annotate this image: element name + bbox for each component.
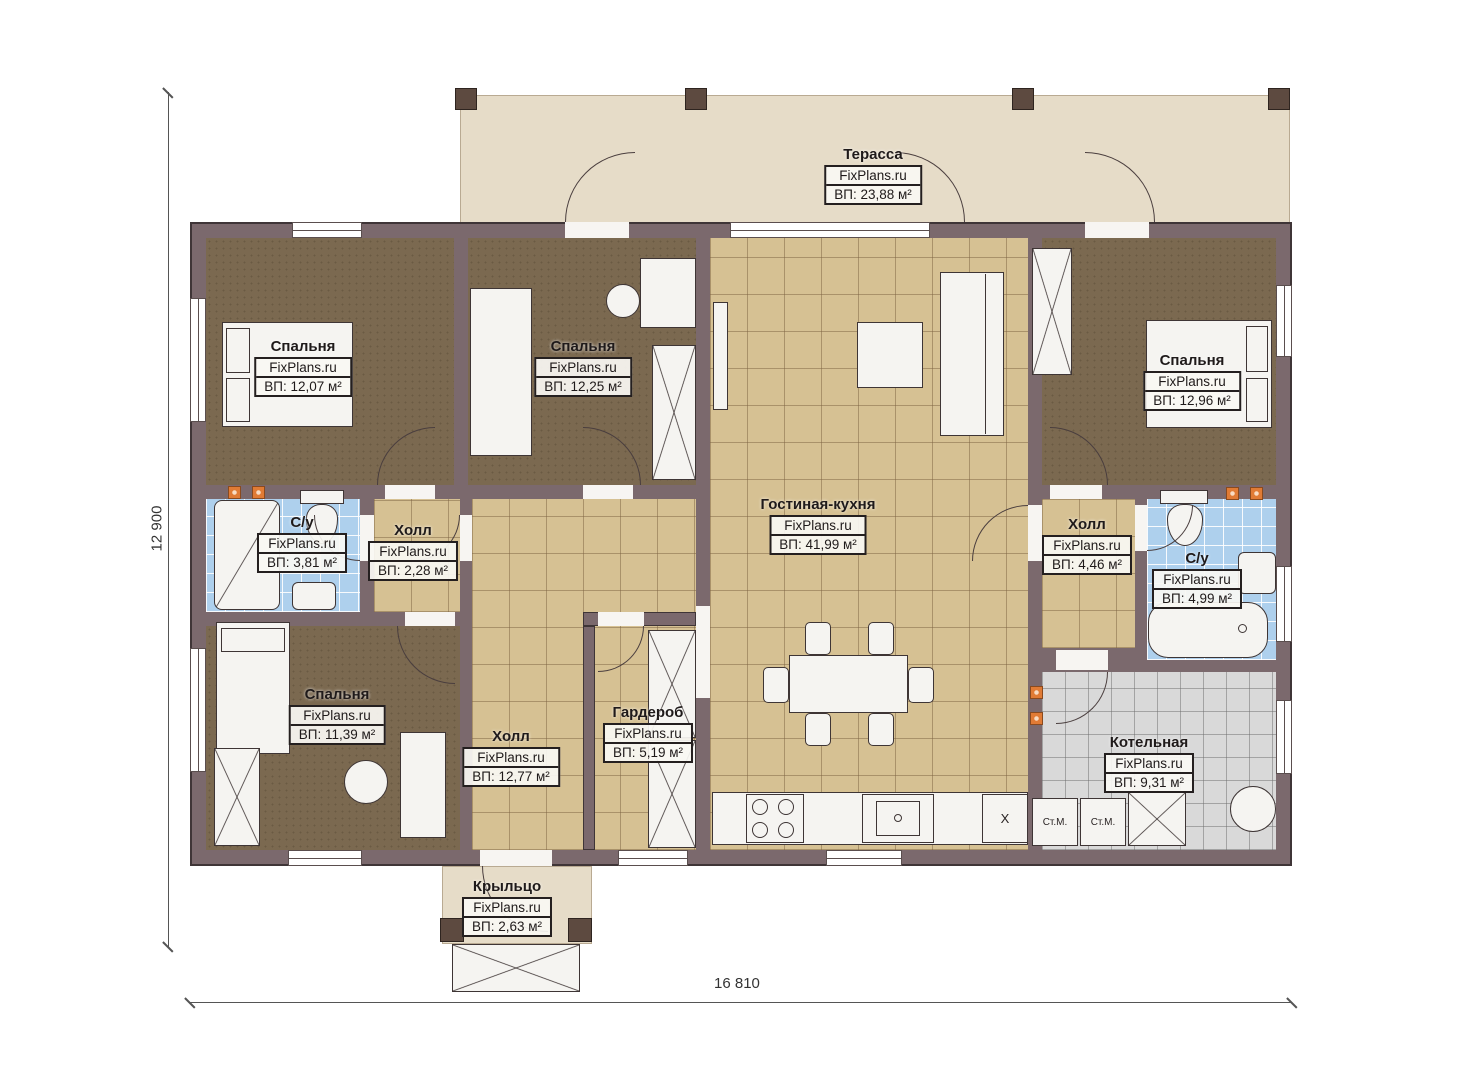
brand-link: FixPlans.ru [771, 517, 865, 536]
room-name: Терасса [824, 146, 922, 163]
porch-pillar [440, 918, 464, 942]
room-info-box: FixPlans.ru ВП: 2,63 м² [462, 897, 552, 937]
washbasin [292, 582, 336, 610]
porch-steps [452, 944, 580, 992]
door-opening-terrace-left [565, 222, 629, 238]
brand-link: FixPlans.ru [1145, 373, 1239, 392]
room-label-bedroom-bottom-left: Спальня FixPlans.ru ВП: 11,39 м² [289, 686, 386, 745]
room-label-bathroom-right: С/у FixPlans.ru ВП: 4,99 м² [1152, 550, 1242, 609]
radiator [1226, 487, 1239, 500]
room-name: С/у [257, 514, 347, 531]
brand-link: FixPlans.ru [256, 359, 350, 378]
brand-link: FixPlans.ru [464, 749, 558, 768]
room-label-hall-small-left: Холл FixPlans.ru ВП: 2,28 м² [368, 522, 458, 581]
radiator [1030, 712, 1043, 725]
room-area: ВП: 2,63 м² [464, 918, 550, 935]
washing-machine: Ст.М. [1032, 798, 1078, 846]
wardrobe-cabinet [214, 748, 260, 846]
boiler-tank [1230, 786, 1276, 832]
bed-pillow [226, 328, 250, 373]
room-info-box: FixPlans.ru ВП: 12,07 м² [254, 357, 352, 397]
radiator [252, 486, 265, 499]
door-opening-living-hallr [1028, 505, 1042, 561]
washbasin [1238, 552, 1276, 594]
window [288, 850, 362, 866]
room-name: Холл [368, 522, 458, 539]
room-info-box: FixPlans.ru ВП: 4,46 м² [1042, 535, 1132, 575]
brand-link: FixPlans.ru [464, 899, 550, 918]
room-name: Гардероб [603, 704, 693, 721]
room-area: ВП: 12,07 м² [256, 378, 350, 395]
dimension-line-horizontal [190, 1002, 1292, 1003]
stove-burner [752, 822, 768, 838]
room-info-box: FixPlans.ru ВП: 4,99 м² [1152, 569, 1242, 609]
room-area: ВП: 5,19 м² [605, 744, 691, 761]
dining-chair [868, 622, 894, 655]
desk [400, 732, 446, 838]
room-label-hall-main: Холл FixPlans.ru ВП: 12,77 м² [462, 728, 560, 787]
bed-pillow [221, 628, 285, 652]
door-opening-boiler [1056, 650, 1108, 670]
room-info-box: FixPlans.ru ВП: 2,28 м² [368, 541, 458, 581]
porch-pillar [568, 918, 592, 942]
fridge: X [982, 794, 1028, 843]
dining-chair [805, 713, 831, 746]
brand-link: FixPlans.ru [291, 707, 384, 726]
room-info-box: FixPlans.ru ВП: 41,99 м² [769, 515, 867, 555]
dining-table [789, 655, 908, 713]
dining-chair [908, 667, 934, 703]
window [190, 648, 206, 772]
window-terrace-glazing [730, 222, 930, 238]
room-name: Холл [1042, 516, 1132, 533]
sofa [470, 288, 532, 456]
room-area: ВП: 9,31 м² [1106, 774, 1192, 791]
room-area: ВП: 41,99 м² [771, 536, 865, 553]
door-opening-hall-left [460, 515, 472, 561]
dining-chair [763, 667, 789, 703]
bed-pillow [1246, 326, 1268, 372]
wardrobe-cabinet [1032, 248, 1072, 375]
room-name: Холл [462, 728, 560, 745]
office-chair [344, 760, 388, 804]
dining-chair [805, 622, 831, 655]
room-info-box: FixPlans.ru ВП: 12,77 м² [462, 747, 560, 787]
window [618, 850, 688, 866]
room-name: С/у [1152, 550, 1242, 567]
sofa-cushion-line [985, 274, 986, 434]
room-label-bedroom-top-right: Спальня FixPlans.ru ВП: 12,96 м² [1143, 352, 1241, 411]
tv-panel [713, 302, 728, 410]
room-info-box: FixPlans.ru ВП: 12,25 м² [534, 357, 632, 397]
terrace-pillar [455, 88, 477, 110]
room-name: Спальня [534, 338, 632, 355]
room-name: Гостиная-кухня [761, 496, 876, 513]
bed-pillow [226, 378, 250, 422]
toilet-tank [1160, 490, 1208, 504]
wardrobe-cabinet [652, 345, 696, 480]
brand-link: FixPlans.ru [370, 543, 456, 562]
radiator [1250, 487, 1263, 500]
dimension-line-vertical [168, 92, 169, 948]
stove-burner [778, 799, 794, 815]
room-name: Спальня [1143, 352, 1241, 369]
washing-machine: Ст.М. [1080, 798, 1126, 846]
desk [640, 258, 696, 328]
room-label-bedroom-top-left: Спальня FixPlans.ru ВП: 12,07 м² [254, 338, 352, 397]
door-opening-bedroom-bl [405, 612, 455, 626]
dimension-label-horizontal: 16 810 [710, 975, 764, 992]
room-label-wardrobe: Гардероб FixPlans.ru ВП: 5,19 м² [603, 704, 693, 763]
room-area: ВП: 4,99 м² [1154, 590, 1240, 607]
door-opening-living-hall [696, 606, 710, 698]
room-area: ВП: 12,96 м² [1145, 392, 1239, 409]
room-info-box: FixPlans.ru ВП: 11,39 м² [289, 705, 386, 745]
coffee-table [857, 322, 923, 388]
room-area: ВП: 12,77 м² [464, 768, 558, 785]
terrace-pillar [685, 88, 707, 110]
sink-drain [894, 814, 902, 822]
room-label-boiler-room: Котельная FixPlans.ru ВП: 9,31 м² [1104, 734, 1194, 793]
room-name: Спальня [254, 338, 352, 355]
room-area: ВП: 3,81 м² [259, 554, 345, 571]
brand-link: FixPlans.ru [259, 535, 345, 554]
stove-burner [778, 822, 794, 838]
floor-plan: X Ст.М. Ст.М. Терасса FixPlans.ru ВП: 23… [0, 0, 1473, 1080]
dimension-label-vertical: 12 900 [148, 502, 165, 556]
terrace-pillar [1268, 88, 1290, 110]
room-info-box: FixPlans.ru ВП: 9,31 м² [1104, 753, 1194, 793]
room-area: ВП: 23,88 м² [826, 186, 920, 203]
door-opening-bedroom-tl [385, 485, 435, 499]
room-area: ВП: 12,25 м² [536, 378, 630, 395]
room-name: Котельная [1104, 734, 1194, 751]
room-info-box: FixPlans.ru ВП: 23,88 м² [824, 165, 922, 205]
room-label-bathroom-left: С/у FixPlans.ru ВП: 3,81 м² [257, 514, 347, 573]
wardrobe-wall [583, 626, 595, 850]
door-opening-porch [480, 850, 552, 866]
door-opening-bedroom-tc [583, 485, 633, 499]
brand-link: FixPlans.ru [536, 359, 630, 378]
room-label-living-kitchen: Гостиная-кухня FixPlans.ru ВП: 41,99 м² [761, 496, 876, 555]
radiator [228, 486, 241, 499]
room-label-hall-right: Холл FixPlans.ru ВП: 4,46 м² [1042, 516, 1132, 575]
bed-pillow [1246, 378, 1268, 422]
office-chair [606, 284, 640, 318]
room-name: Спальня [289, 686, 386, 703]
room-name: Крыльцо [462, 878, 552, 895]
brand-link: FixPlans.ru [605, 725, 691, 744]
dining-chair [868, 713, 894, 746]
toilet-tank [300, 490, 344, 504]
door-opening-bedroom-tr [1050, 485, 1102, 499]
door-opening-bath-right [1135, 505, 1147, 551]
bathtub [1148, 602, 1268, 658]
stove-burner [752, 799, 768, 815]
window [1276, 566, 1292, 642]
window [826, 850, 902, 866]
room-label-terrace: Терасса FixPlans.ru ВП: 23,88 м² [824, 146, 922, 205]
room-info-box: FixPlans.ru ВП: 5,19 м² [603, 723, 693, 763]
brand-link: FixPlans.ru [1154, 571, 1240, 590]
room-area: ВП: 11,39 м² [291, 726, 384, 743]
brand-link: FixPlans.ru [1106, 755, 1192, 774]
room-area: ВП: 4,46 м² [1044, 556, 1130, 573]
brand-link: FixPlans.ru [826, 167, 920, 186]
room-info-box: FixPlans.ru ВП: 3,81 м² [257, 533, 347, 573]
room-area: ВП: 2,28 м² [370, 562, 456, 579]
utility-cabinet [1128, 792, 1186, 846]
room-label-bedroom-top-center: Спальня FixPlans.ru ВП: 12,25 м² [534, 338, 632, 397]
sofa [940, 272, 1004, 436]
window [292, 222, 362, 238]
window [190, 298, 206, 422]
bathtub-drain [1238, 624, 1247, 633]
terrace-pillar [1012, 88, 1034, 110]
room-label-porch: Крыльцо FixPlans.ru ВП: 2,63 м² [462, 878, 552, 937]
window [1276, 700, 1292, 774]
window [1276, 285, 1292, 357]
door-opening-terrace-right [1085, 222, 1149, 238]
radiator [1030, 686, 1043, 699]
room-info-box: FixPlans.ru ВП: 12,96 м² [1143, 371, 1241, 411]
door-opening-wardrobe [598, 612, 644, 626]
brand-link: FixPlans.ru [1044, 537, 1130, 556]
